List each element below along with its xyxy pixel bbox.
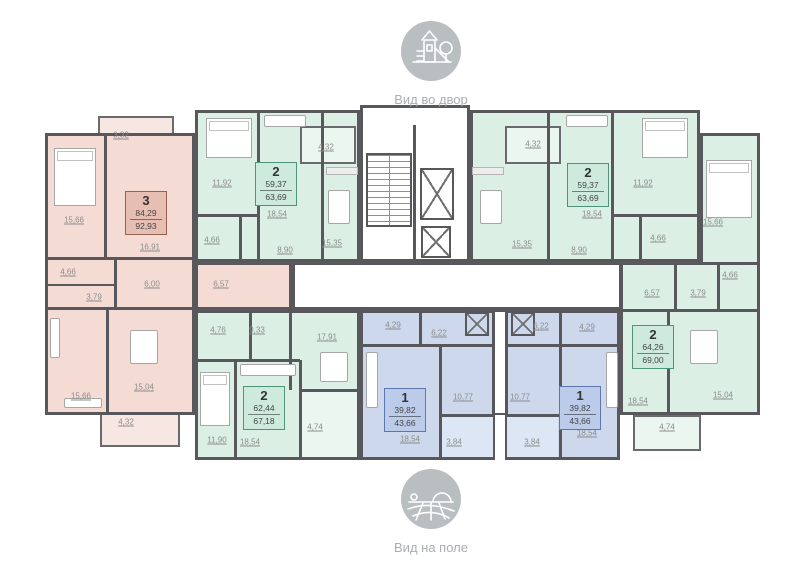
room-area-label: 11,92 [633,179,652,188]
wall [505,344,620,347]
wall [114,258,117,308]
apartment-rooms-count: 1 [385,391,425,405]
wall [195,359,300,362]
apartment-rooms-count: 2 [244,389,284,403]
room-area-label: 6,22 [431,329,447,338]
room-area-label: 11,92 [212,179,231,188]
staircase [366,153,412,227]
wall [234,360,237,460]
room-area-label: 15,04 [134,383,154,392]
room-area-label: 4,66 [204,236,220,245]
apartment-3-hall [195,262,292,310]
room-area-label: 15,66 [64,216,84,225]
bed [54,148,96,206]
room-area-label: 4,74 [307,423,323,432]
room-area-label: 8,90 [277,246,293,255]
room-area-label: 4,32 [318,143,334,152]
apartment-rooms-count: 2 [568,166,608,180]
apartment-living-area: 39,82 [385,405,425,415]
apartment-card-2-room[interactable]: 2 62,44 67,18 [243,386,285,430]
sofa [566,115,608,127]
room-area-label: 4,66 [60,268,76,277]
sofa [606,352,618,408]
room-area-label: 15,35 [512,240,532,249]
wall [419,310,422,345]
apartment-card-2-room[interactable]: 2 59,37 63,69 [567,163,609,207]
wall [559,310,562,345]
room-area-label: 15,35 [322,239,342,248]
elevator [421,226,451,258]
wall [612,214,700,217]
apartment-card-3-room[interactable]: 3 84,29 92,93 [125,191,167,235]
apartment-total-area: 67,18 [248,414,280,426]
wall [674,262,677,310]
sofa [366,352,378,408]
room-area-label: 4,74 [659,423,675,432]
room-area-label: 10,77 [510,393,530,402]
room-area-label: 3,84 [524,438,540,447]
apartment-total-area: 63,69 [260,190,292,202]
wall [360,344,495,347]
apartment-total-area: 43,66 [564,414,596,426]
wall [45,257,195,260]
apartment-living-area: 59,37 [568,180,608,190]
apartment-living-area: 64,26 [633,342,673,352]
apartment-rooms-count: 2 [256,165,296,179]
room-area-label: 16,91 [140,243,160,252]
dining-table [320,352,348,382]
common-corridor [292,262,622,310]
apartment-total-area: 92,93 [130,219,162,231]
apartment-total-area: 43,66 [389,416,421,428]
wall [547,110,550,262]
room-area-label: 15,66 [703,218,723,227]
sofa [264,115,306,127]
apartment-total-area: 69,00 [637,353,669,365]
room-area-label: 11,90 [207,436,226,445]
dining-table [130,330,158,364]
wall [620,309,760,312]
shaft-wall [493,310,507,415]
room-area-label: 17,91 [317,333,337,342]
apartment-living-area: 62,44 [244,403,284,413]
room-area-label: 4,76 [210,326,226,335]
room-area-label: 6,57 [644,289,660,298]
apartment-living-area: 39,82 [560,403,600,413]
wall [249,310,252,360]
bed [200,372,230,426]
room-area-label: 18,54 [628,397,648,406]
room-area-label: 10,77 [453,393,473,402]
room-area-label: 6,57 [213,280,229,289]
playground-icon [400,20,462,82]
room-area-label: 18,54 [400,435,420,444]
apartment-rooms-count: 3 [126,194,166,208]
room-area-label: 3,32 [113,131,129,140]
room-balcony [633,415,701,451]
sofa [50,318,60,358]
apartment-rooms-count: 1 [560,389,600,403]
room-area-label: 8,90 [571,246,587,255]
bed [642,118,688,158]
wall [106,308,109,415]
room-area-label: 4,29 [579,323,595,332]
ventilation-shaft [465,312,489,336]
apartment-total-area: 63,69 [572,191,604,203]
room-area-label: 4,29 [385,321,401,330]
room-area-label: 3,84 [446,438,462,447]
room-area-label: 15,04 [713,391,733,400]
room-area-label: 18,54 [582,210,602,219]
wall [413,125,416,262]
apartment-card-1-room[interactable]: 1 39,82 43,66 [384,388,426,432]
room-area-label: 3,79 [690,289,706,298]
kitchen-counter [472,167,504,175]
dining-table [480,190,502,224]
room-area-label: 3,79 [86,293,102,302]
room-area-label: 18,54 [267,210,287,219]
field-icon [400,468,462,530]
dining-table [328,190,350,224]
room-area-label: 6,22 [533,322,549,331]
room-area-label: 15,66 [71,392,91,401]
apartment-living-area: 84,29 [126,208,166,218]
floor-plan: Вид во двор Вид на поле [0,0,800,566]
elevator [420,168,454,220]
wall [639,215,642,262]
room-area-label: 4,66 [650,234,666,243]
room-area-label: 18,54 [240,438,260,447]
room-area-label: 9,33 [249,326,265,335]
wall [45,307,195,310]
room-balcony [100,413,180,447]
room-area-label: 4,32 [118,418,134,427]
kitchen-counter [326,167,358,175]
sofa [240,364,296,376]
bed [206,118,252,158]
ventilation-shaft [511,312,535,336]
apartment-card-2-room[interactable]: 2 64,26 69,00 [632,325,674,369]
field-view-label: Вид на поле [351,540,511,555]
room-area-label: 4,32 [525,140,541,149]
wall [289,310,292,390]
wall [611,110,614,262]
field-view-badge: Вид на поле [351,468,511,555]
room-area-label: 4,66 [722,271,738,280]
apartment-card-2-room[interactable]: 2 59,37 63,69 [255,162,297,206]
room-area-label: 6,00 [144,280,160,289]
apartment-card-1-room[interactable]: 1 39,82 43,66 [559,386,601,430]
wall [45,284,115,286]
courtyard-view-label: Вид во двор [351,92,511,107]
apartment-living-area: 59,37 [256,179,296,189]
dining-table [690,330,718,364]
apartment-rooms-count: 2 [633,328,673,342]
wall [195,214,258,217]
wall [104,133,107,258]
bed [706,160,752,218]
courtyard-view-badge: Вид во двор [351,20,511,107]
wall [717,262,720,310]
wall [239,215,242,262]
